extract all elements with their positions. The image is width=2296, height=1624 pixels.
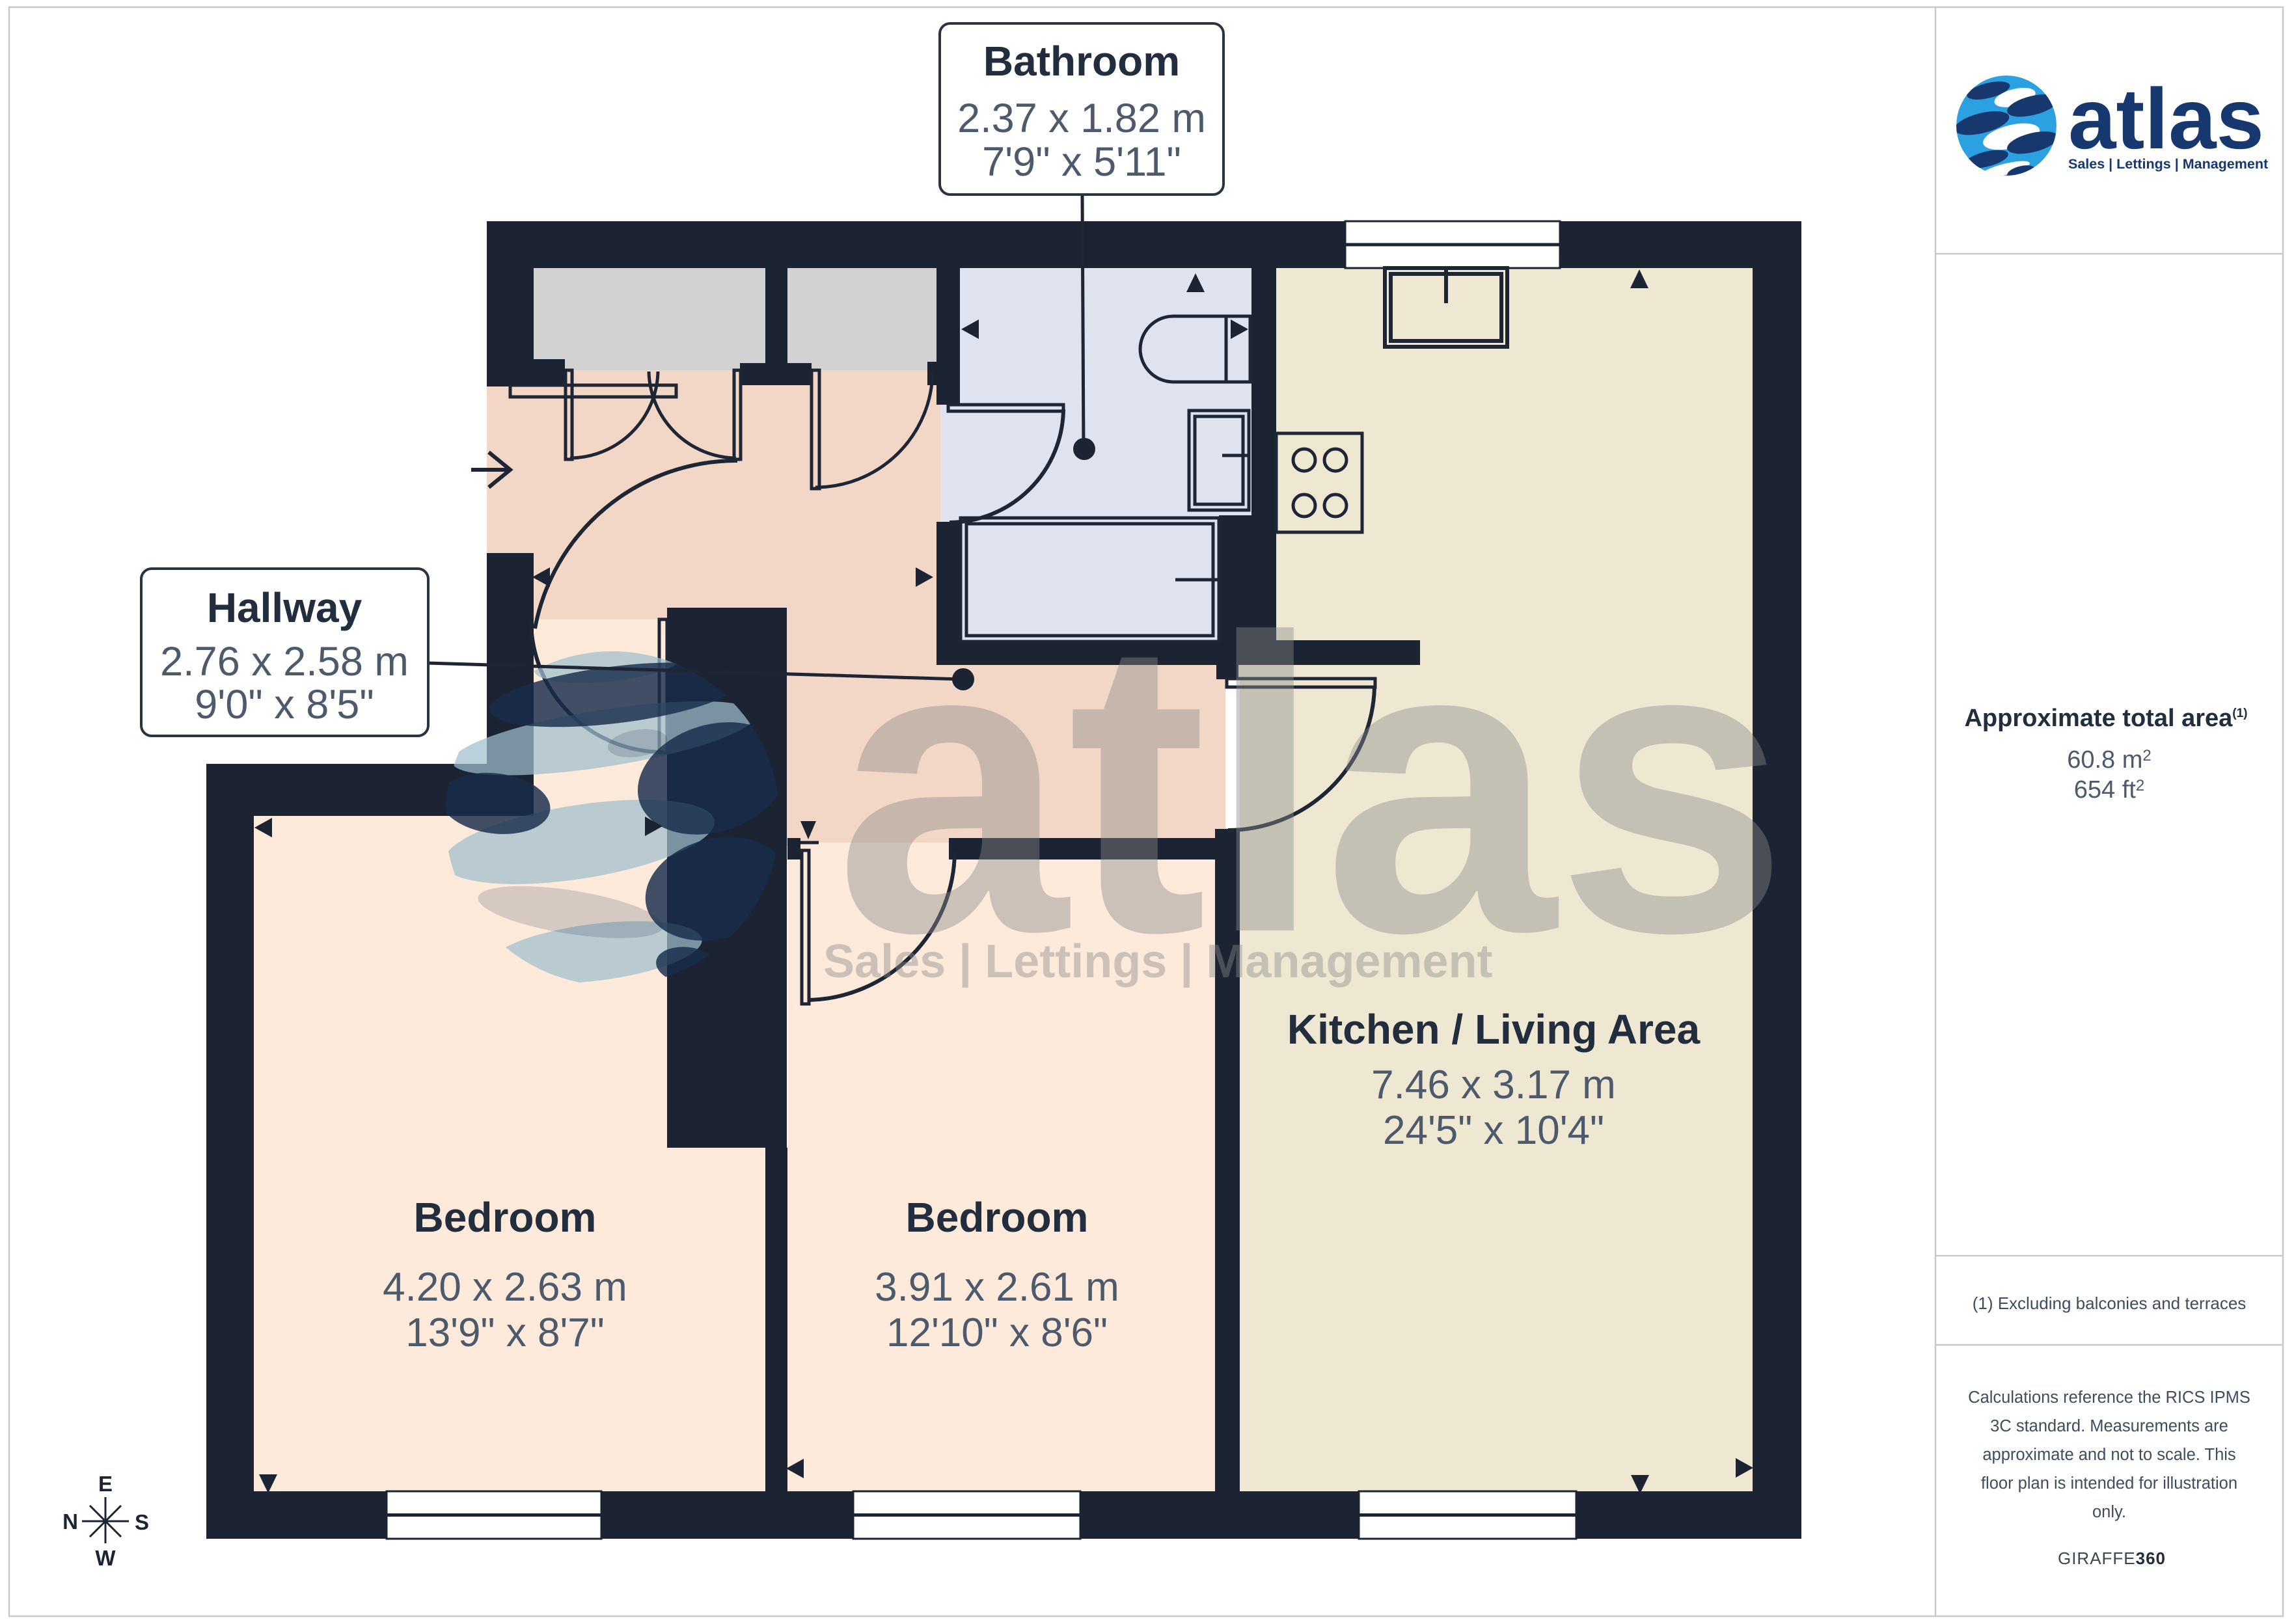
svg-text:Calculations reference the RIC: Calculations reference the RICS IPMS	[1968, 1388, 2250, 1407]
svg-text:Sales | Lettings | Management: Sales | Lettings | Management	[823, 936, 1493, 988]
svg-text:only.: only.	[2092, 1503, 2126, 1521]
svg-text:12'10" x 8'6": 12'10" x 8'6"	[886, 1310, 1108, 1355]
svg-text:floor plan is intended for ill: floor plan is intended for illustration	[1981, 1474, 2237, 1493]
svg-text:Bedroom: Bedroom	[906, 1194, 1089, 1241]
svg-text:2.37 x 1.82 m: 2.37 x 1.82 m	[957, 96, 1206, 141]
svg-text:Bedroom: Bedroom	[414, 1194, 597, 1241]
svg-text:GIRAFFE360: GIRAFFE360	[2058, 1549, 2166, 1568]
svg-text:S: S	[135, 1510, 149, 1534]
svg-text:N: N	[62, 1509, 78, 1534]
svg-text:3.91 x 2.61 m: 3.91 x 2.61 m	[875, 1265, 1119, 1310]
svg-text:13'9" x 8'7": 13'9" x 8'7"	[405, 1310, 605, 1355]
svg-text:9'0" x 8'5": 9'0" x 8'5"	[195, 682, 374, 727]
svg-text:3C standard. Measurements are: 3C standard. Measurements are	[1990, 1417, 2228, 1435]
svg-text:W: W	[95, 1546, 116, 1570]
svg-text:E: E	[98, 1472, 113, 1496]
svg-text:24'5" x 10'4": 24'5" x 10'4"	[1383, 1108, 1604, 1153]
svg-text:7.46 x 3.17 m: 7.46 x 3.17 m	[1371, 1062, 1616, 1107]
svg-text:Approximate total area(1): Approximate total area(1)	[1964, 705, 2247, 732]
svg-text:654 ft2: 654 ft2	[2074, 776, 2144, 804]
svg-text:60.8 m2: 60.8 m2	[2067, 746, 2152, 774]
svg-text:Hallway: Hallway	[207, 584, 362, 631]
svg-text:2.76 x 2.58 m: 2.76 x 2.58 m	[160, 639, 409, 684]
svg-text:4.20 x 2.63 m: 4.20 x 2.63 m	[383, 1265, 627, 1310]
svg-text:(1) Excluding balconies and te: (1) Excluding balconies and terraces	[1973, 1293, 2247, 1313]
svg-text:Bathroom: Bathroom	[983, 38, 1180, 85]
svg-text:Kitchen / Living Area: Kitchen / Living Area	[1287, 1006, 1701, 1053]
svg-text:atlas: atlas	[2068, 71, 2264, 167]
svg-text:Sales | Lettings | Management: Sales | Lettings | Management	[2068, 156, 2268, 172]
svg-text:approximate and not to scale.: approximate and not to scale. This	[1982, 1446, 2235, 1464]
svg-text:7'9" x 5'11": 7'9" x 5'11"	[982, 139, 1181, 185]
